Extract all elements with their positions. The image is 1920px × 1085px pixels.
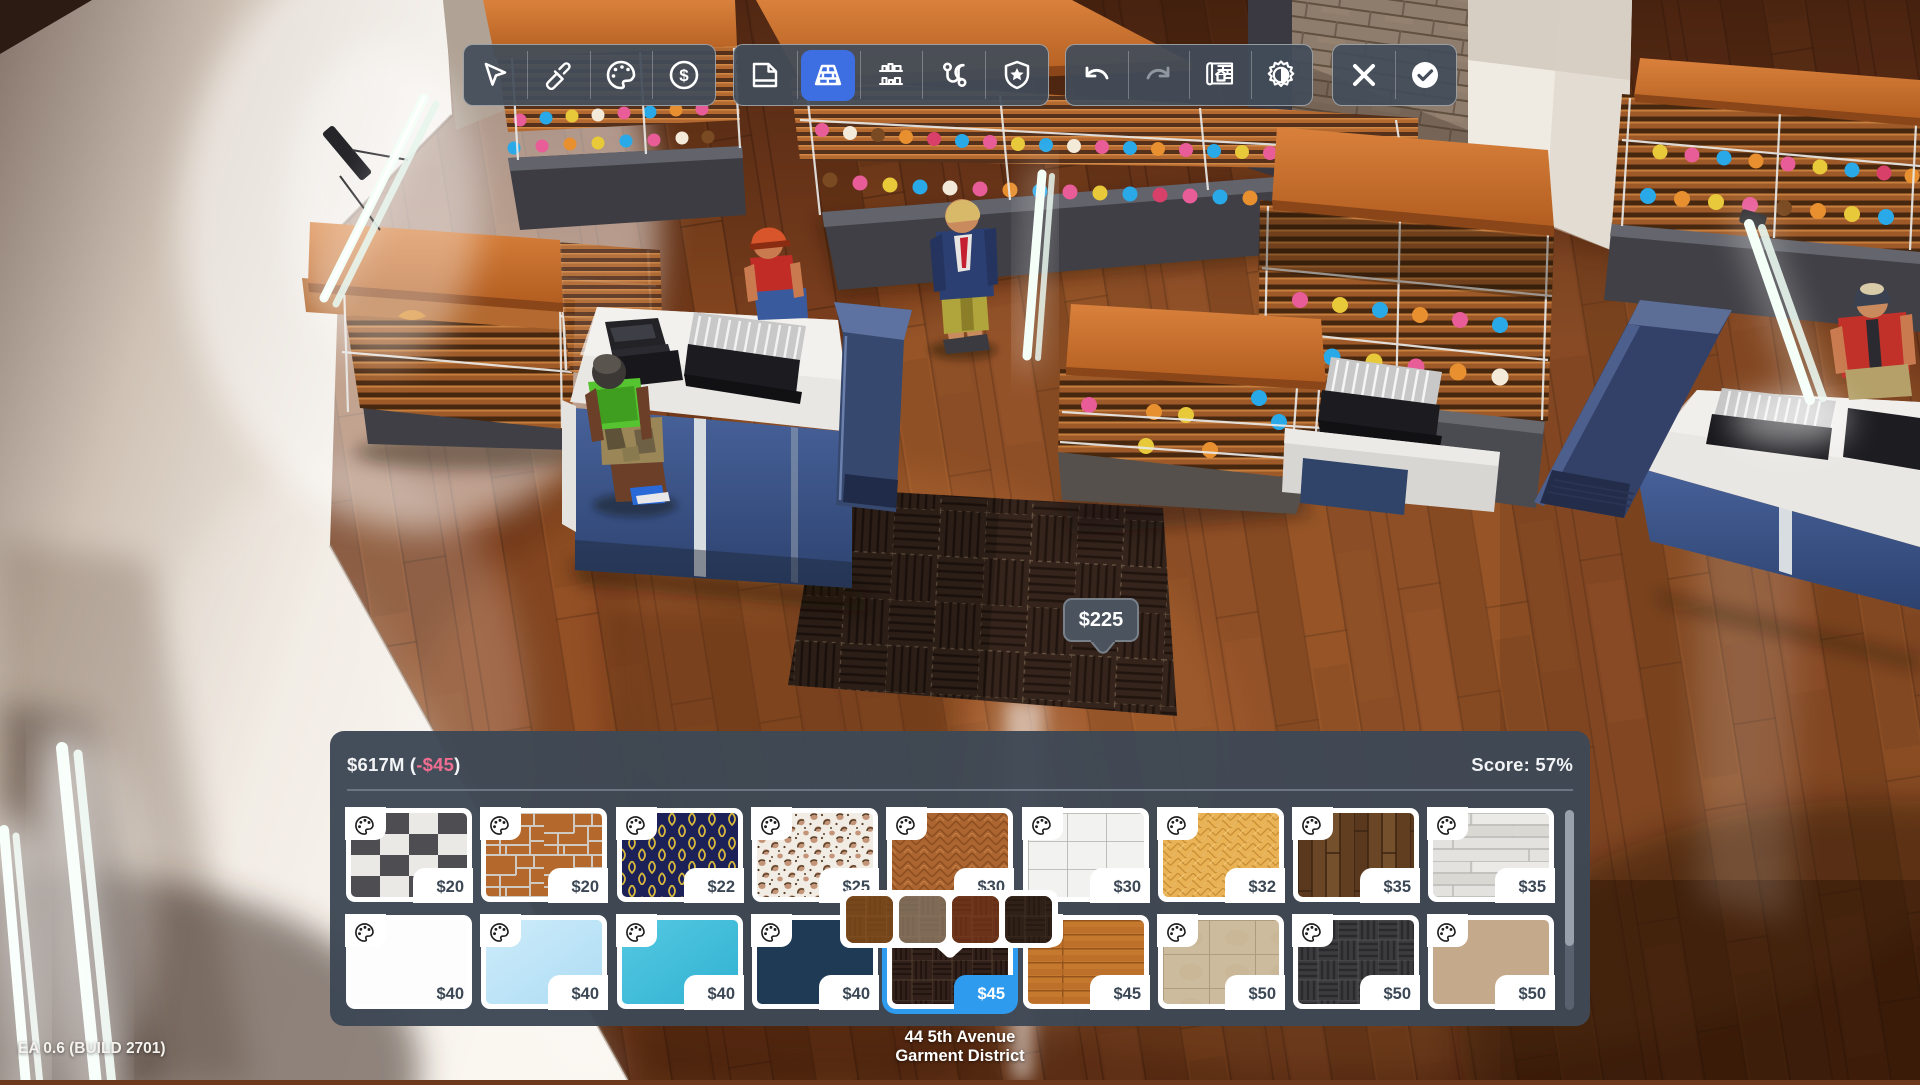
svg-text:$: $ bbox=[679, 66, 689, 85]
